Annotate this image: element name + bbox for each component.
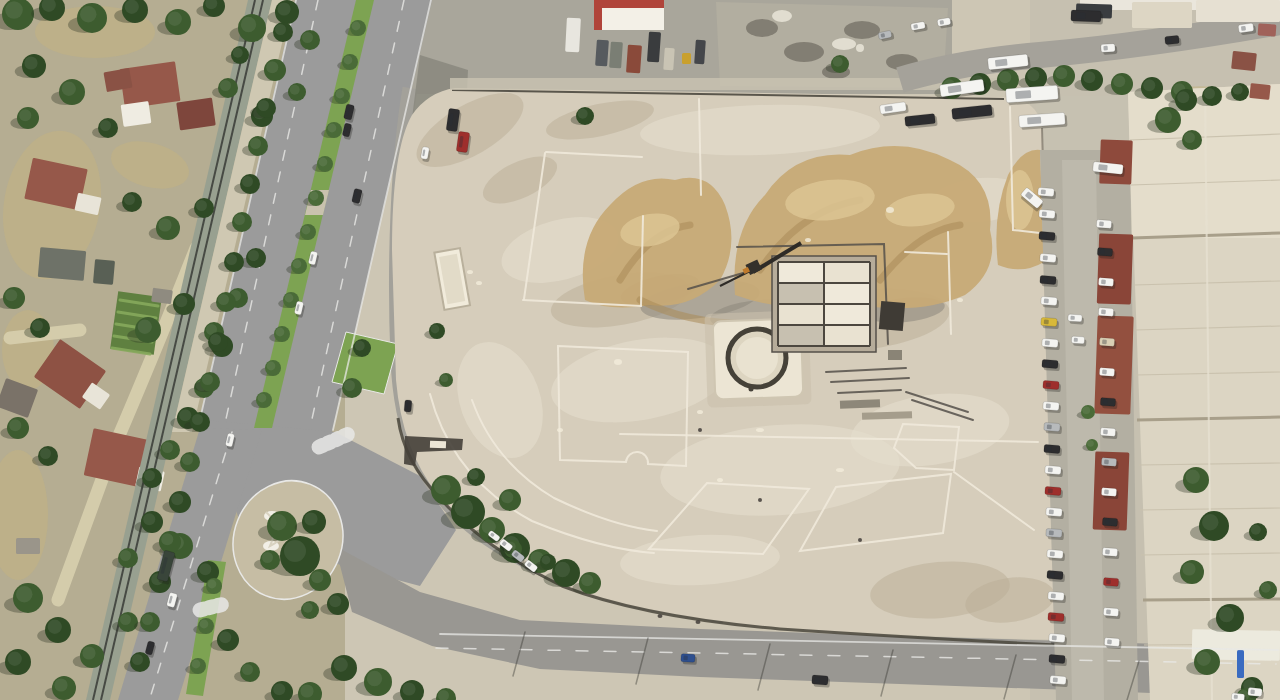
east-complex (1040, 84, 1280, 700)
aerial-photo-canvas: Aerial drone photograph of a large clear… (0, 0, 1280, 700)
pit-slab (430, 441, 446, 449)
aerial-photo: Aerial drone photograph of a large clear… (0, 0, 1280, 700)
industrial-building-top-section (1128, 84, 1280, 238)
white-red-building (594, 0, 664, 30)
material-stack (879, 301, 905, 331)
